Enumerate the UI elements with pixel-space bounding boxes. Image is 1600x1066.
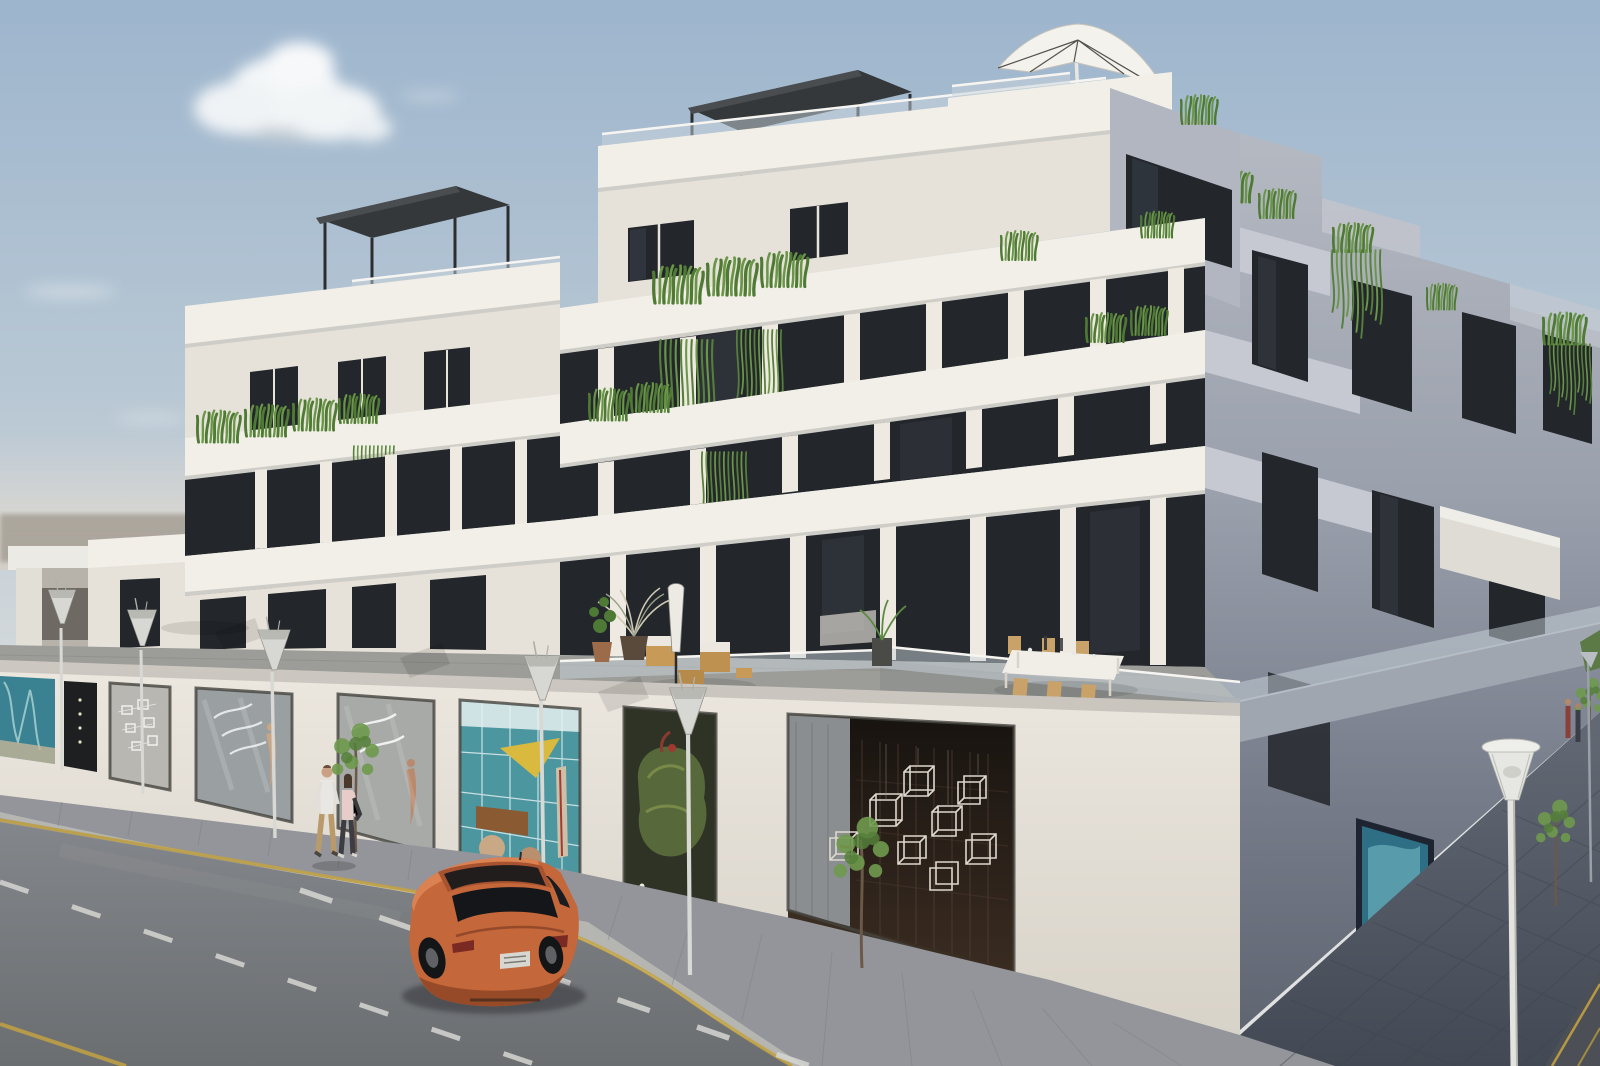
architectural-render: Daytime 3D architectural rendering of a … [0,0,1600,1066]
moss-sculpture [638,747,707,857]
storefront-line-art [110,683,170,790]
car-license-plate [500,951,530,969]
car-antenna [520,852,521,860]
neighbor-pier-left [16,568,42,648]
scene-canvas [0,0,1600,1066]
cube-hall-panel [788,714,850,928]
